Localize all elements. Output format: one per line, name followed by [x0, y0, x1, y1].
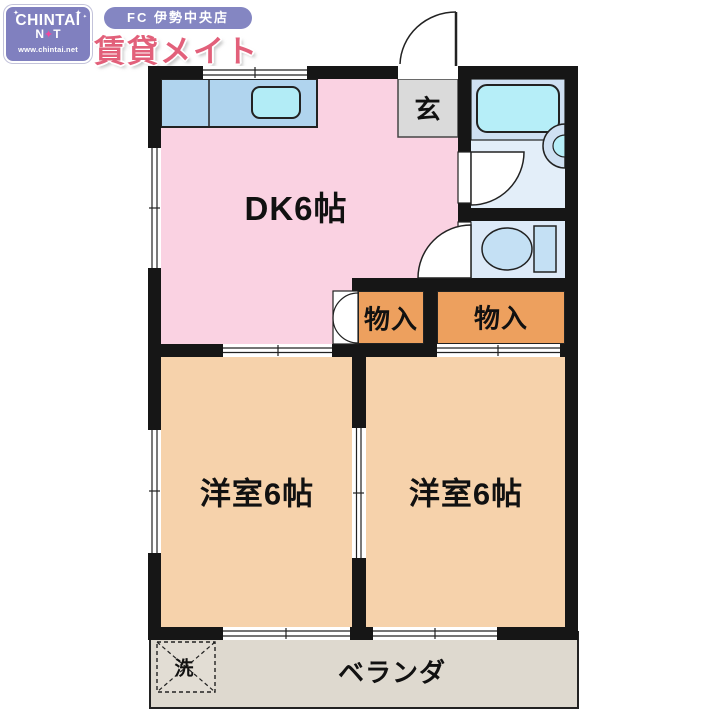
sliding-door-closet-right	[437, 344, 560, 357]
kitchen-counter	[161, 79, 317, 127]
window-kitchen	[203, 66, 307, 79]
kitchen-sink-icon	[252, 87, 300, 118]
wall-bottom	[148, 627, 578, 640]
window-dk-left	[148, 148, 161, 268]
window-room-left	[148, 430, 161, 553]
floor-plan-svg	[0, 0, 720, 720]
entrance-door	[398, 12, 458, 79]
room-right-label: 洋室6帖	[409, 469, 523, 514]
window-balcony-left	[223, 627, 350, 640]
dk-floor-lower	[161, 278, 352, 344]
toilet-icon	[482, 226, 556, 272]
closet-right-label: 物入	[474, 299, 528, 336]
sliding-door-dk-room	[223, 344, 332, 357]
closet-left-door	[333, 291, 358, 344]
window-balcony-right	[373, 627, 497, 640]
wall-bath-toilet	[458, 208, 578, 221]
closet-left-label: 物入	[364, 300, 418, 337]
sliding-door-rooms	[352, 428, 366, 558]
dk-label: DK6帖	[244, 182, 347, 230]
wall-closet-top	[352, 278, 578, 291]
laundry-label: 洗	[174, 654, 193, 681]
wall-closet-divider	[424, 291, 437, 344]
bathtub-icon	[477, 85, 559, 132]
room-left-label: 洋室6帖	[200, 469, 314, 514]
entrance-label: 玄	[414, 90, 441, 127]
balcony-label: ベランダ	[338, 653, 446, 690]
